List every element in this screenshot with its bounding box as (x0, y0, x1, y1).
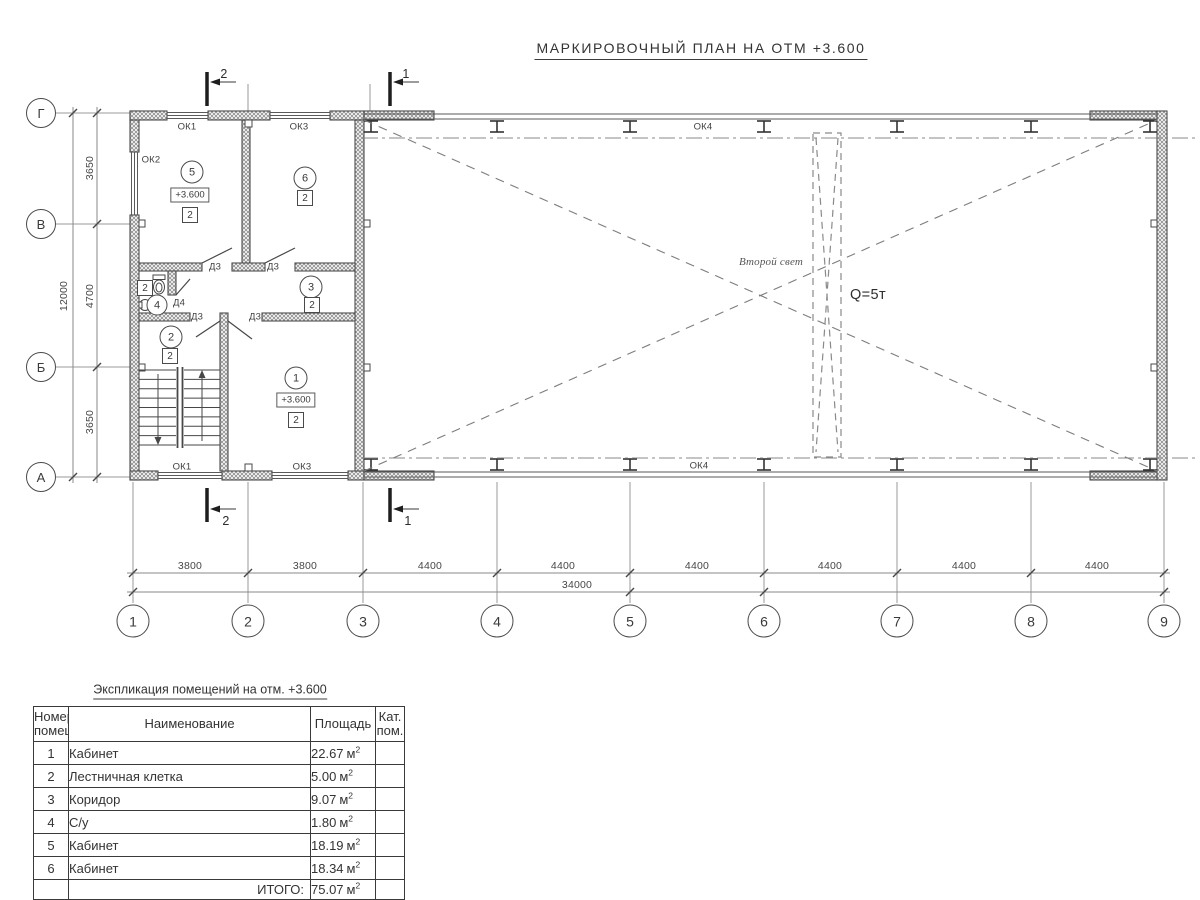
door-bathroom (176, 279, 190, 295)
window-ok3-bottom (272, 473, 348, 479)
window-ok1-bottom (158, 473, 222, 479)
axis-col-9: 9 (1148, 605, 1181, 638)
room-cat-1: 2 (288, 412, 304, 428)
window-ok4-bottom (364, 472, 1157, 477)
window-label-ok4-bottom: ОК4 (690, 461, 709, 472)
dim-h-8: 4400 (1085, 560, 1109, 572)
stair-arrow-down-icon (155, 437, 162, 445)
table-row: 3 Коридор 9.07м2 (34, 788, 405, 811)
room-marker-2: 2 (160, 326, 183, 349)
axis-row-b: Б (26, 352, 56, 382)
axis-col-3: 3 (347, 605, 380, 638)
total-label: ИТОГО: (69, 880, 311, 900)
room-cat-5: 2 (182, 207, 198, 223)
dim-h-4: 4400 (551, 560, 575, 572)
axis-col-6: 6 (748, 605, 781, 638)
dim-h-5: 4400 (685, 560, 709, 572)
room-elev-1: +3.600 (276, 393, 315, 408)
table-header-row: Номерпомещ. Наименование Площадь Кат.пом… (34, 707, 405, 742)
windows-glazing (132, 113, 1158, 479)
window-ok4-top (364, 114, 1157, 119)
room-marker-5: 5 (181, 161, 204, 184)
room-cat-4: 2 (137, 280, 153, 296)
axis-row-g: Г (26, 98, 56, 128)
section-mark-2-top: 2 (220, 67, 227, 81)
header-room-name: Наименование (69, 707, 311, 742)
crane-capacity-label: Q=5т (850, 287, 886, 303)
void-cross-diagonals (364, 120, 1157, 471)
room-schedule-table: Номерпомещ. Наименование Площадь Кат.пом… (33, 706, 405, 900)
window-label-ok4-top: ОК4 (694, 122, 713, 133)
dim-h-3: 4400 (418, 560, 442, 572)
door-label-d3-room5: Д3 (209, 262, 221, 273)
dim-v-2: 4700 (84, 284, 96, 308)
dim-v-1: 3650 (84, 156, 96, 180)
axis-row-a: А (26, 462, 56, 492)
table-row: 4 С/у 1.80м2 (34, 811, 405, 834)
dim-h-total: 34000 (562, 579, 592, 591)
window-label-ok3-top: ОК3 (290, 122, 309, 133)
table-title: Экспликация помещений на отм. +3.600 (93, 683, 327, 700)
total-area: 75.07м2 (311, 880, 376, 900)
table-row: 5 Кабинет 18.19м2 (34, 834, 405, 857)
header-room-area: Площадь (311, 707, 376, 742)
toilet-icon (153, 275, 165, 294)
room-cat-3: 2 (304, 297, 320, 313)
axis-col-5: 5 (614, 605, 647, 638)
axis-col-7: 7 (881, 605, 914, 638)
door-label-d3-room1: Д3 (249, 312, 261, 323)
dim-v-total: 12000 (58, 281, 70, 311)
window-ok3-top (270, 113, 330, 119)
staircase (139, 367, 220, 448)
door-label-d3-room2: Д3 (191, 312, 203, 323)
stair-arrow-up-icon (199, 370, 206, 378)
axis-row-v: В (26, 209, 56, 239)
walls (130, 111, 1167, 480)
table-row: 2 Лестничная клетка 5.00м2 (34, 765, 405, 788)
door-room2 (196, 321, 220, 337)
crane-bridge-symbol (813, 133, 841, 457)
dim-v-3: 3650 (84, 410, 96, 434)
section-mark-1-bottom: 1 (404, 514, 411, 528)
dim-h-7: 4400 (952, 560, 976, 572)
door-label-d4: Д4 (173, 298, 185, 309)
room-cat-6: 2 (297, 190, 313, 206)
drawing-sheet: МАРКИРОВОЧНЫЙ ПЛАН НА ОТМ +3.600 2 1 2 1… (0, 0, 1200, 900)
room-marker-3: 3 (300, 276, 323, 299)
table-row: 6 Кабинет 18.34м2 (34, 857, 405, 880)
axis-col-8: 8 (1015, 605, 1048, 638)
second-light-label: Второй свет (739, 256, 803, 268)
window-ok2-left (132, 152, 138, 215)
axis-col-4: 4 (481, 605, 514, 638)
section-mark-2-bottom: 2 (222, 514, 229, 528)
window-ok1-top (167, 113, 208, 119)
table-row: 1 Кабинет 22.67м2 (34, 742, 405, 765)
room-marker-1: 1 (285, 367, 308, 390)
dimension-lines (73, 107, 1170, 592)
window-label-ok3-bottom: ОК3 (293, 462, 312, 473)
door-room1 (228, 321, 252, 339)
axis-col-2: 2 (232, 605, 265, 638)
axis-col-1: 1 (117, 605, 150, 638)
header-room-category: Кат.пом. (376, 707, 405, 742)
crane-rail-centerlines (362, 138, 1196, 458)
window-label-ok1-top: ОК1 (178, 122, 197, 133)
header-room-number: Номерпомещ. (34, 707, 69, 742)
window-label-ok2: ОК2 (142, 155, 161, 166)
section-mark-1-top: 1 (402, 67, 409, 81)
room-cat-2: 2 (162, 348, 178, 364)
room-elev-5: +3.600 (170, 188, 209, 203)
dimension-ticks (69, 109, 1168, 596)
window-label-ok1-bottom: ОК1 (173, 462, 192, 473)
door-label-d3-room6: Д3 (267, 262, 279, 273)
dim-h-1: 3800 (178, 560, 202, 572)
table-total-row: ИТОГО: 75.07м2 (34, 880, 405, 900)
room-marker-4: 4 (147, 295, 168, 316)
room-marker-6: 6 (294, 167, 317, 190)
page-title: МАРКИРОВОЧНЫЙ ПЛАН НА ОТМ +3.600 (534, 40, 867, 60)
dim-h-6: 4400 (818, 560, 842, 572)
dim-h-2: 3800 (293, 560, 317, 572)
